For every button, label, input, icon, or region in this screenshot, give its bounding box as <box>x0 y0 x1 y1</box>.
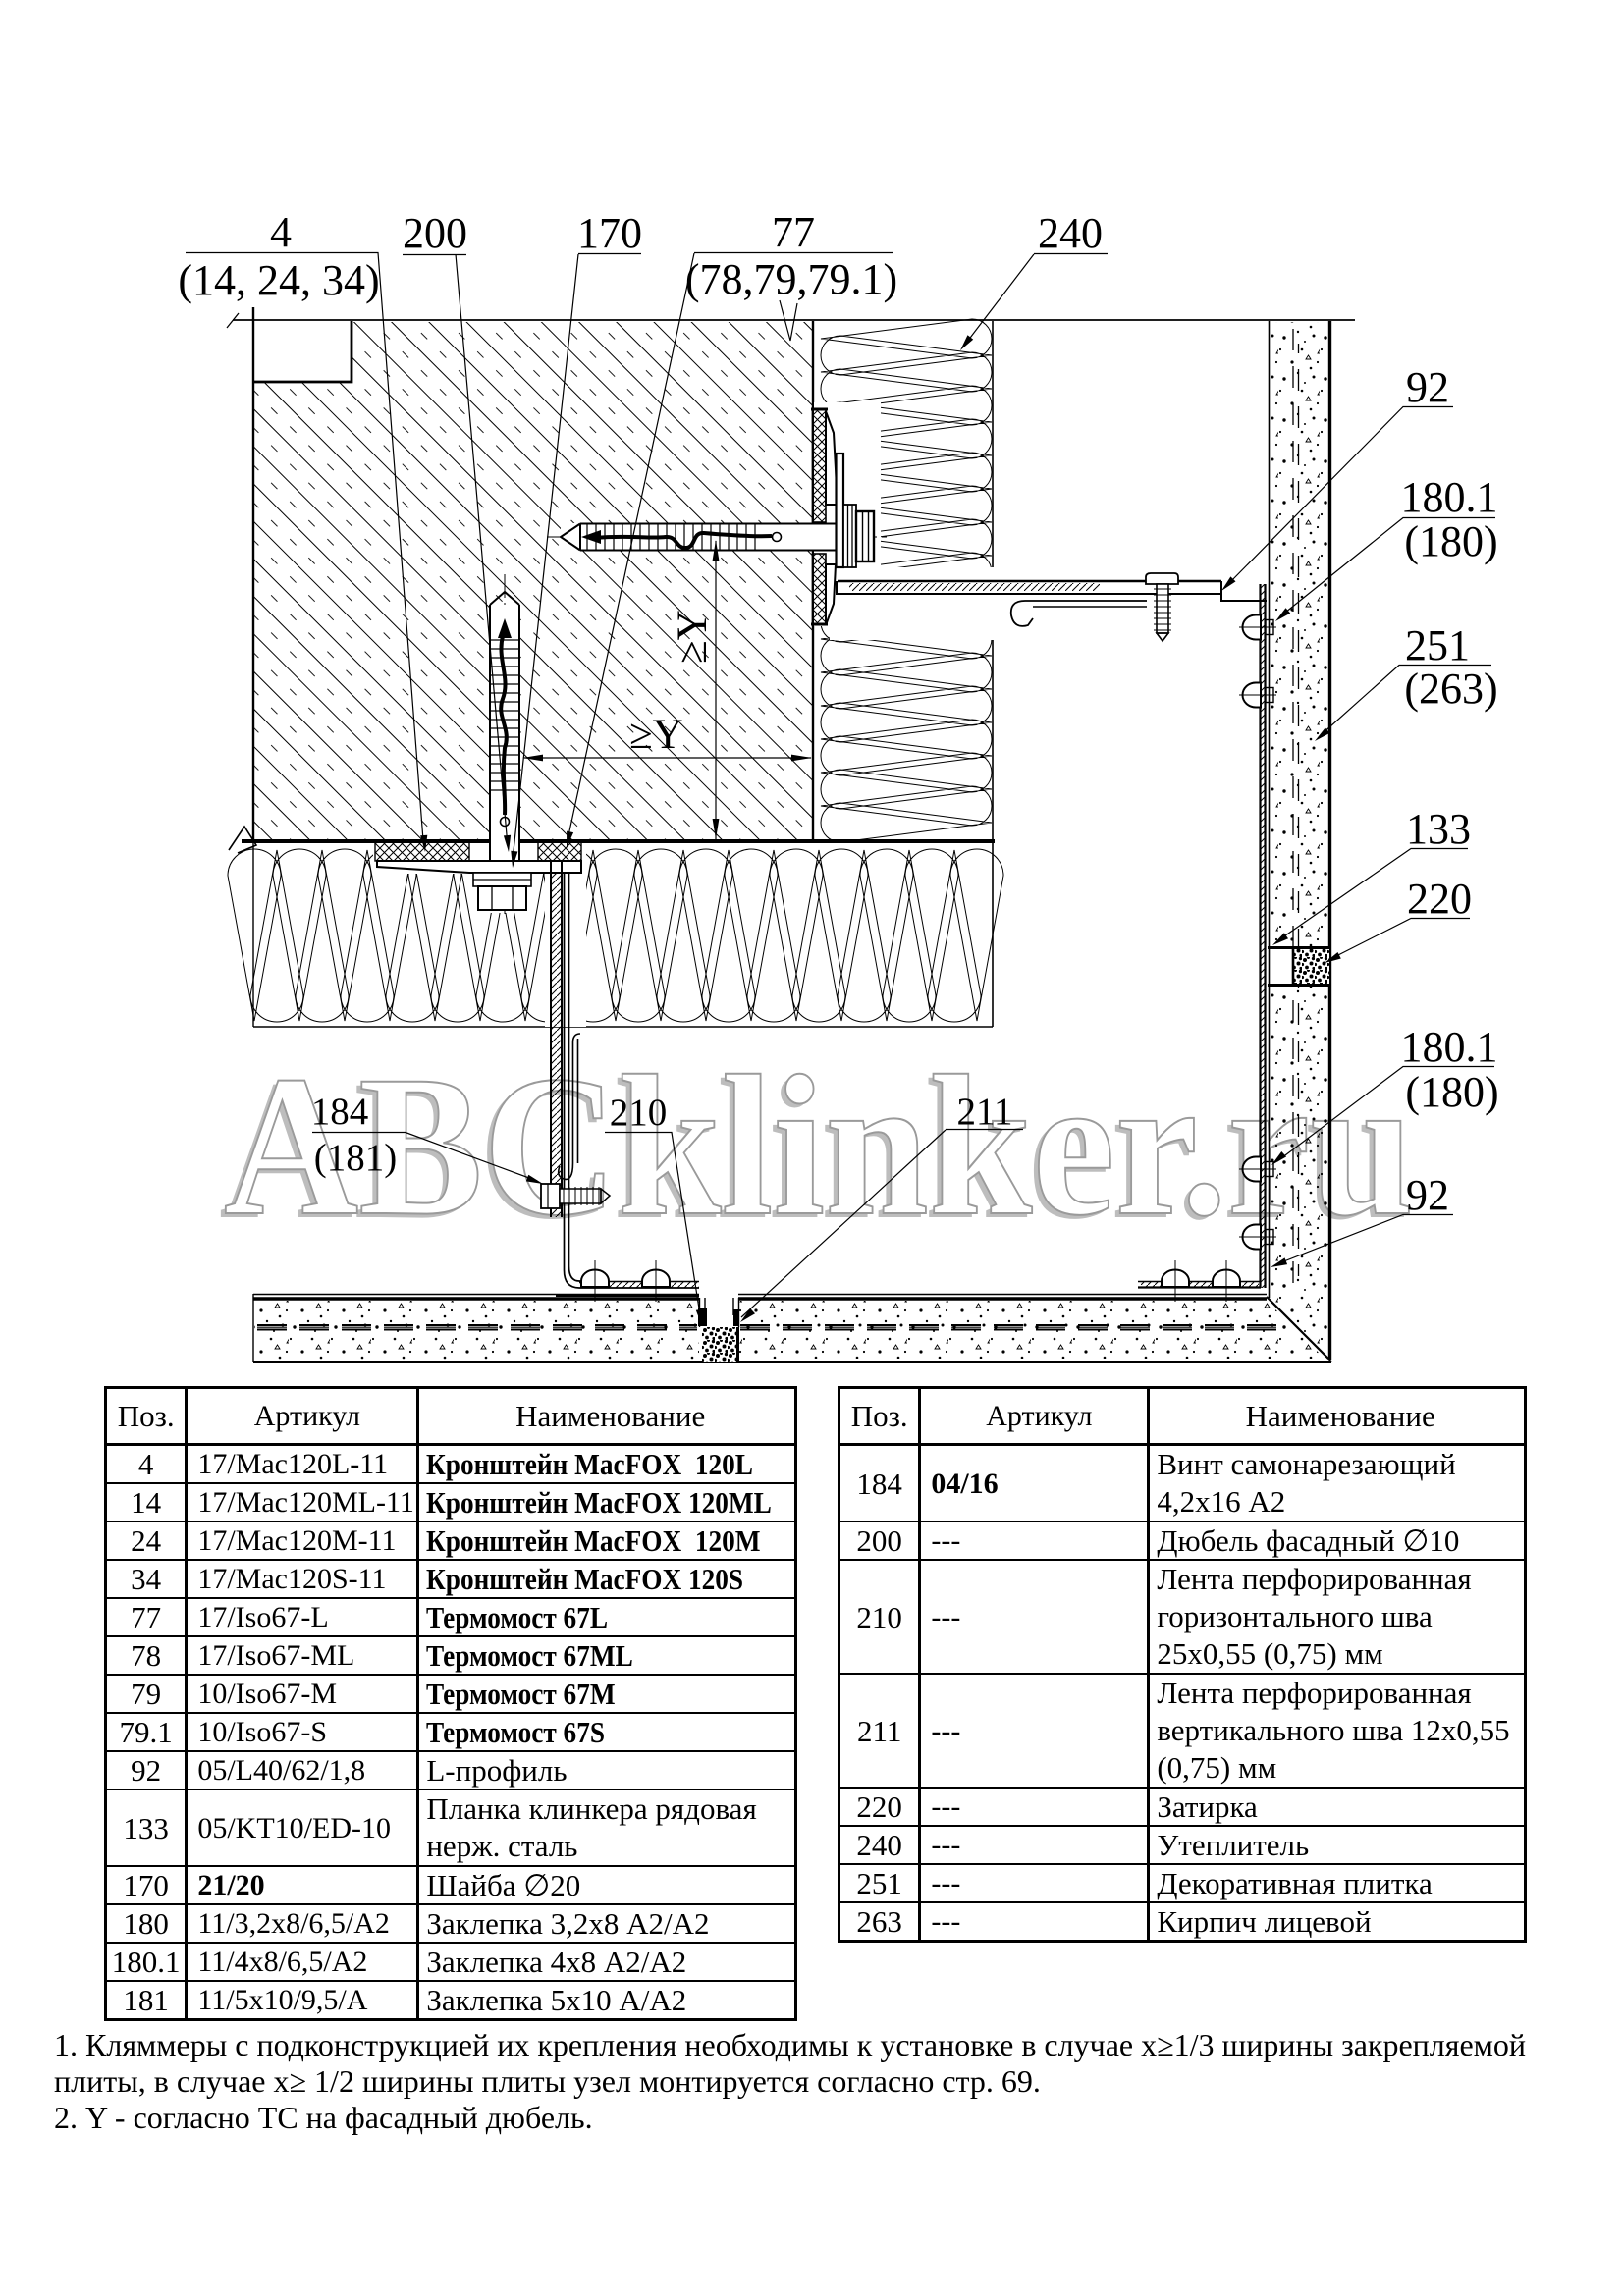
svg-text:240: 240 <box>1038 209 1103 257</box>
svg-text:(78,79,79.1): (78,79,79.1) <box>685 255 897 303</box>
svg-text:170: 170 <box>577 209 642 257</box>
svg-text:133: 133 <box>1406 805 1471 853</box>
svg-text:4: 4 <box>270 208 292 256</box>
svg-text:210: 210 <box>610 1092 668 1134</box>
svg-text:184: 184 <box>311 1091 369 1133</box>
svg-text:(180): (180) <box>1405 1068 1498 1116</box>
svg-text:(180): (180) <box>1404 517 1497 565</box>
svg-text:92: 92 <box>1406 363 1449 411</box>
svg-text:92: 92 <box>1406 1171 1449 1219</box>
svg-text:≥Y: ≥Y <box>670 610 716 664</box>
svg-text:180.1: 180.1 <box>1401 1023 1498 1071</box>
svg-text:(181): (181) <box>314 1137 397 1179</box>
svg-text:211: 211 <box>956 1091 1012 1133</box>
svg-text:200: 200 <box>403 209 467 257</box>
svg-text:220: 220 <box>1407 875 1472 923</box>
svg-text:≥Y: ≥Y <box>629 712 683 758</box>
svg-text:77: 77 <box>772 208 815 256</box>
svg-text:(263): (263) <box>1404 665 1497 713</box>
svg-text:(14, 24, 34): (14, 24, 34) <box>178 256 379 304</box>
svg-text:180.1: 180.1 <box>1401 473 1498 521</box>
svg-text:251: 251 <box>1405 621 1470 669</box>
